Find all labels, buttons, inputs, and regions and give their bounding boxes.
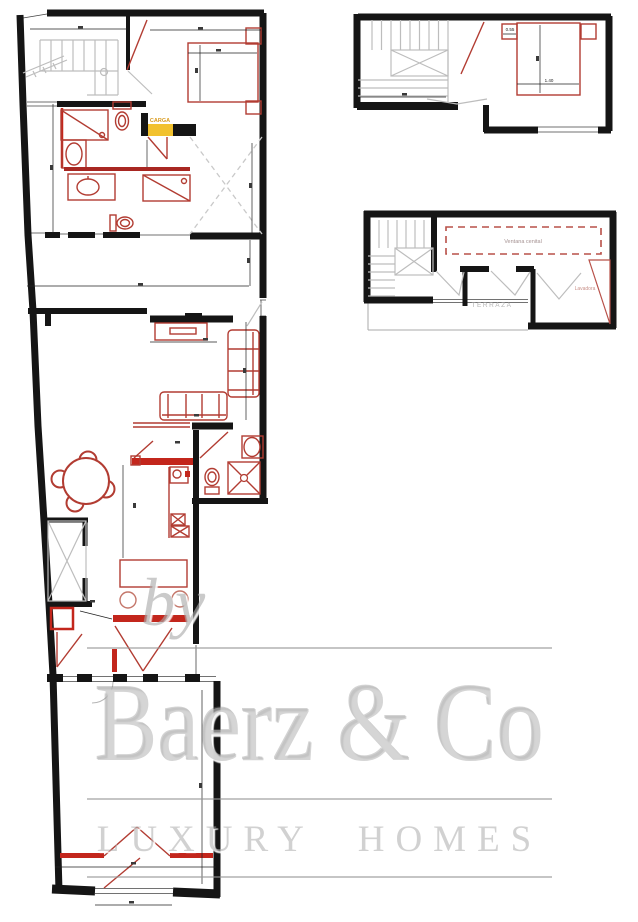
upper-walls xyxy=(357,14,611,132)
bottom-room xyxy=(60,827,213,888)
sideboard-icon xyxy=(155,323,207,340)
entrance-hall xyxy=(51,608,113,703)
carga-label: CARGA xyxy=(150,118,170,124)
staircase-upper-icon xyxy=(358,20,448,103)
outer-walls xyxy=(20,13,264,897)
bed-icon-upper: 0.55 1.40 xyxy=(502,23,596,95)
staircase-terrace-icon xyxy=(368,220,433,296)
sink-icon-2 xyxy=(68,174,115,200)
sofa-icon-horizontal xyxy=(160,392,227,420)
toilet-icon-3 xyxy=(205,469,219,495)
stove-icon xyxy=(171,514,189,537)
roof-terrace-plan: Ventana cenital TERRAZA Lavadora xyxy=(364,211,616,330)
skylight-label: Ventana cenital xyxy=(504,239,542,245)
window-sill xyxy=(60,853,104,858)
kitchen-island-icon xyxy=(120,560,187,587)
door-swing-upper xyxy=(461,22,484,74)
lavadora-label: Lavadora xyxy=(575,286,596,292)
dining-table-icon xyxy=(52,452,115,512)
washer-icon xyxy=(589,260,610,324)
kitchen-sink-icon xyxy=(170,467,190,483)
shower-icon-2 xyxy=(143,175,190,201)
floor-plan-drawing: CARGA xyxy=(0,0,638,922)
upper-floor-plan: 0.55 1.40 xyxy=(357,14,611,132)
window-sill xyxy=(170,853,213,858)
toilet-icon-2 xyxy=(110,215,133,231)
carga-shaft: CARGA xyxy=(141,113,196,159)
shower-icon-1 xyxy=(61,110,108,140)
carga-highlight xyxy=(148,124,173,136)
door-swing-bottom xyxy=(104,827,170,888)
sink-icon-1 xyxy=(62,140,86,168)
bathroom-top xyxy=(61,102,131,168)
bathroom-mid-left xyxy=(64,169,190,231)
staircase-mid-icon xyxy=(48,521,86,601)
dim-label-bed: 1.40 xyxy=(545,78,554,83)
entry-closet xyxy=(51,608,73,629)
patio-window-sill xyxy=(113,615,190,622)
stool-icon xyxy=(172,591,188,607)
sofa-icon-vertical xyxy=(228,330,259,397)
folding-door-chevrons xyxy=(436,271,581,299)
terraza-label: TERRAZA xyxy=(472,302,513,309)
shower-icon-3 xyxy=(228,462,260,494)
nightstand-icon xyxy=(581,24,596,39)
main-floor-plan: CARGA xyxy=(17,13,268,905)
floor-plan-page: CARGA xyxy=(0,0,638,922)
bed-icon-main xyxy=(188,28,261,114)
door-arc xyxy=(92,682,113,703)
dim-label-nightstand: 0.55 xyxy=(506,27,515,32)
kitchen xyxy=(112,423,228,672)
stool-icon xyxy=(120,592,136,608)
staircase-top-icon xyxy=(23,40,152,95)
